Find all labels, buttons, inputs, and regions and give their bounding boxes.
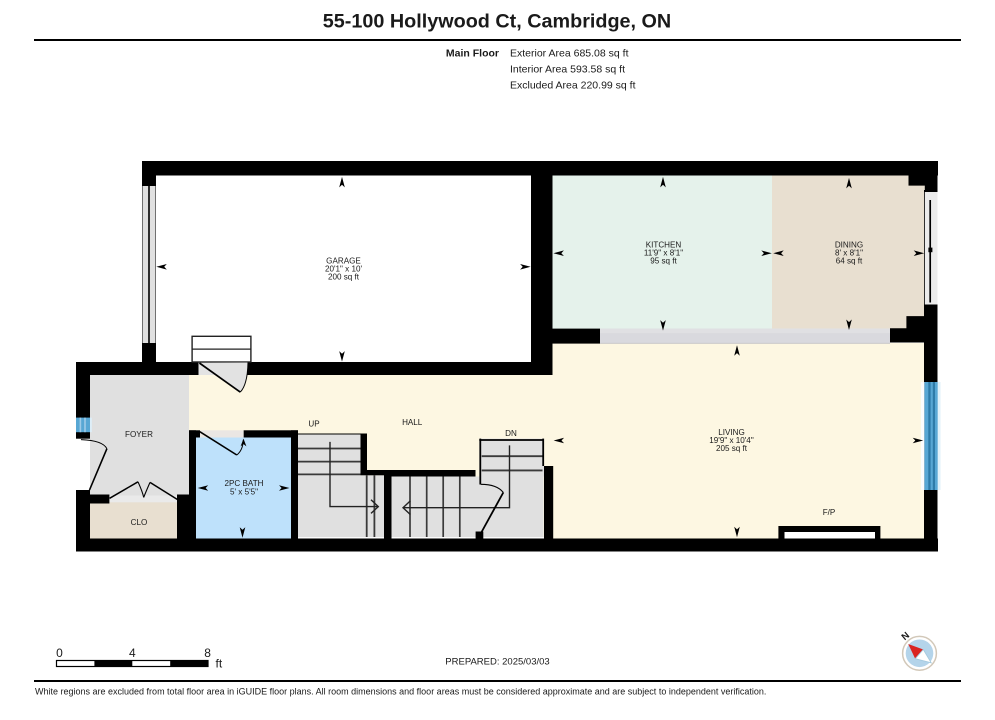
- svg-text:FOYER: FOYER: [125, 430, 153, 439]
- svg-text:PREPARED: 2025/03/03: PREPARED: 2025/03/03: [445, 657, 549, 668]
- svg-text:Interior Area 593.58 sq ft: Interior Area 593.58 sq ft: [510, 64, 625, 76]
- svg-text:55-100 Hollywood Ct, Cambridge: 55-100 Hollywood Ct, Cambridge, ON: [323, 11, 671, 33]
- svg-text:200 sq ft: 200 sq ft: [328, 272, 360, 281]
- svg-text:DN: DN: [505, 429, 517, 438]
- svg-text:64 sq ft: 64 sq ft: [836, 257, 863, 266]
- svg-text:95 sq ft: 95 sq ft: [650, 257, 677, 266]
- svg-text:Main Floor: Main Floor: [446, 48, 499, 60]
- svg-text:UP: UP: [308, 420, 319, 429]
- svg-text:Exterior Area 685.08 sq ft: Exterior Area 685.08 sq ft: [510, 48, 629, 60]
- svg-text:5' x 5'5": 5' x 5'5": [230, 487, 258, 496]
- svg-text:8: 8: [204, 646, 211, 660]
- svg-text:CLO: CLO: [131, 518, 148, 527]
- svg-text:ft: ft: [216, 657, 223, 671]
- svg-text:White regions are excluded fro: White regions are excluded from total fl…: [35, 687, 766, 697]
- svg-text:Excluded Area 220.99 sq ft: Excluded Area 220.99 sq ft: [510, 80, 636, 92]
- svg-text:205 sq ft: 205 sq ft: [716, 444, 748, 453]
- svg-text:0: 0: [56, 646, 63, 660]
- svg-text:F/P: F/P: [823, 508, 836, 517]
- svg-text:HALL: HALL: [402, 418, 423, 427]
- svg-text:4: 4: [129, 646, 136, 660]
